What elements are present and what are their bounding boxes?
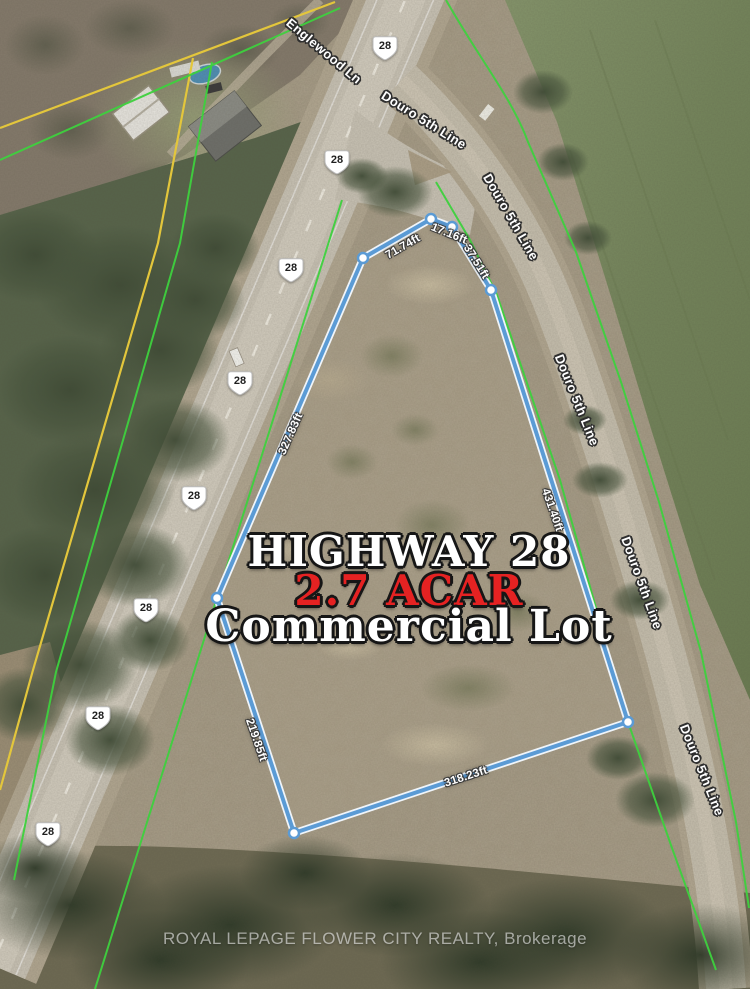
satellite-basemap	[0, 0, 750, 989]
highway-28-shield: 28	[278, 258, 304, 283]
highway-28-shield: 28	[35, 822, 61, 847]
highway-shield-label: 28	[227, 374, 253, 388]
highway-shield-label: 28	[181, 489, 207, 503]
highway-shield-label: 28	[324, 153, 350, 167]
highway-28-shield: 28	[181, 486, 207, 511]
highway-28-shield: 28	[227, 371, 253, 396]
highway-28-shield: 28	[324, 150, 350, 175]
highway-shield-label: 28	[278, 261, 304, 275]
highway-shield-label: 28	[372, 39, 398, 53]
highway-shield-label: 28	[85, 709, 111, 723]
listing-title-lot-type: Commercial Lot	[34, 601, 750, 652]
highway-shield-label: 28	[35, 825, 61, 839]
aerial-listing-map: 28 28 28 28 28 28 28 28 Englewood Ln Dou…	[0, 0, 750, 989]
highway-28-shield: 28	[372, 36, 398, 61]
highway-28-shield: 28	[85, 706, 111, 731]
brokerage-watermark: ROYAL LEPAGE FLOWER CITY REALTY, Brokera…	[0, 929, 750, 949]
